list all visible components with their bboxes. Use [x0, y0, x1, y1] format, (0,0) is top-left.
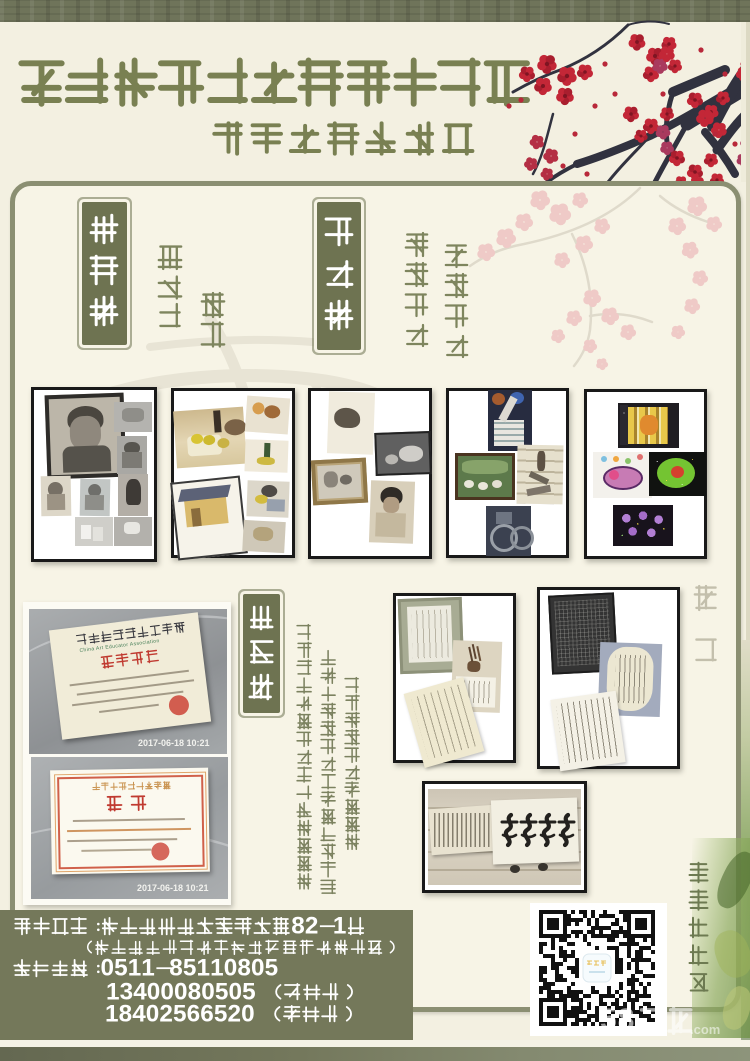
- svg-text:6: 6: [187, 1000, 201, 1027]
- svg-text:0: 0: [224, 954, 238, 981]
- svg-text:5: 5: [214, 1000, 228, 1027]
- svg-text:2: 2: [305, 912, 319, 939]
- svg-text:1: 1: [210, 954, 224, 981]
- svg-text:1: 1: [333, 912, 347, 939]
- svg-text:2: 2: [228, 1000, 242, 1027]
- svg-text:1: 1: [105, 1000, 119, 1027]
- svg-text:0: 0: [146, 1000, 160, 1027]
- svg-text:8: 8: [169, 954, 183, 981]
- svg-text:5: 5: [114, 954, 128, 981]
- svg-text:5: 5: [173, 1000, 187, 1027]
- svg-text:0: 0: [101, 954, 115, 981]
- svg-text:8: 8: [291, 912, 305, 939]
- svg-text:1: 1: [128, 954, 142, 981]
- svg-text:1: 1: [141, 954, 155, 981]
- svg-text:8: 8: [119, 1000, 133, 1027]
- svg-text:6: 6: [200, 1000, 214, 1027]
- svg-text:0: 0: [241, 1000, 255, 1027]
- svg-text:2: 2: [159, 1000, 173, 1027]
- svg-text:5: 5: [265, 954, 279, 981]
- svg-text:1: 1: [197, 954, 211, 981]
- svg-text:4: 4: [132, 1000, 146, 1027]
- svg-text:0: 0: [251, 954, 265, 981]
- svg-text:5: 5: [183, 954, 197, 981]
- svg-text:8: 8: [237, 954, 251, 981]
